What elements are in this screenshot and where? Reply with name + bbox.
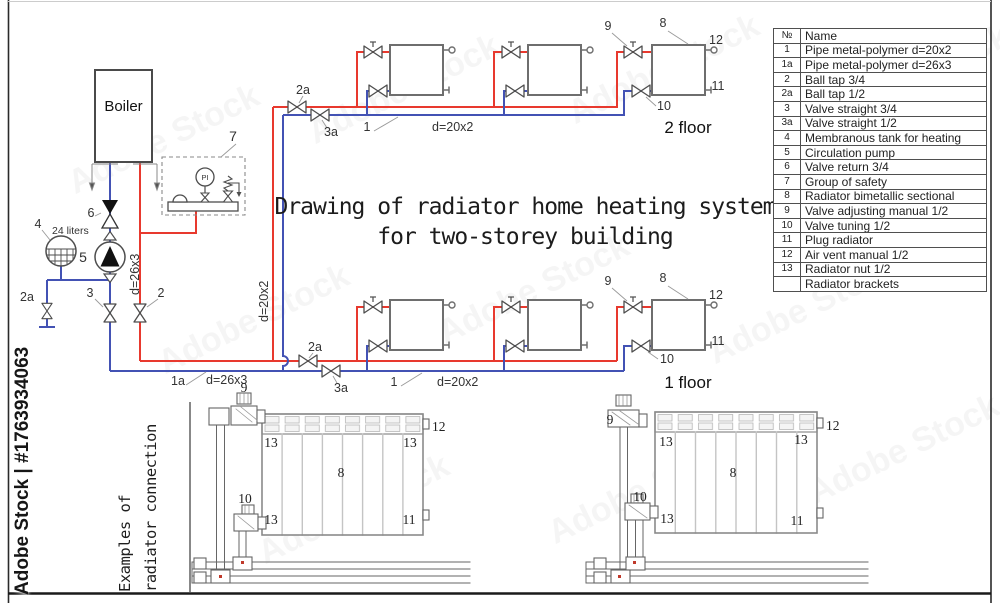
valve-adjusting-symbol bbox=[624, 42, 642, 58]
valve-tuning-symbol bbox=[506, 340, 524, 352]
row-num: 1a bbox=[774, 58, 801, 73]
boiler-label: Boiler bbox=[104, 98, 142, 115]
row-name: Valve tuning 1/2 bbox=[801, 218, 987, 233]
valve-adjusting-symbol bbox=[364, 297, 382, 313]
radiator-symbol bbox=[528, 300, 593, 350]
row-num: 13 bbox=[774, 262, 801, 277]
radiator-symbol bbox=[652, 300, 717, 350]
callout-11: 11 bbox=[712, 79, 725, 93]
table-row: 6Valve return 3/4 bbox=[774, 160, 987, 175]
callout-13: 13 bbox=[403, 435, 417, 450]
floor1-label: 1 floor bbox=[664, 373, 712, 392]
callout-2: 2 bbox=[158, 286, 165, 300]
callout-9: 9 bbox=[607, 412, 614, 427]
stock-drawing-page: Adobe Stock Adobe Stock Adobe Stock Adob… bbox=[0, 0, 1000, 603]
ball-tap-2a-symbol bbox=[299, 355, 317, 367]
valve-adjusting-symbol bbox=[624, 297, 642, 313]
circulation-pump-symbol bbox=[95, 232, 125, 283]
valve-tuning-symbol bbox=[632, 340, 650, 352]
supply-pipe-red bbox=[140, 162, 196, 361]
air-vent-icon bbox=[173, 195, 187, 202]
table-row: 12Air vent manual 1/2 bbox=[774, 247, 987, 262]
callout-12: 12 bbox=[709, 33, 723, 47]
row-name: Valve return 3/4 bbox=[801, 160, 987, 175]
callout-5: 5 bbox=[79, 249, 87, 265]
valve-tuning-symbol bbox=[369, 340, 387, 352]
pipe-size-d20: d=20x2 bbox=[437, 375, 478, 389]
row-num bbox=[774, 277, 801, 292]
valve-adjusting-symbol bbox=[502, 42, 520, 58]
callout-12: 12 bbox=[826, 418, 840, 433]
table-row: 2aBall tap 1/2 bbox=[774, 87, 987, 102]
safety-group-symbol: PI bbox=[162, 157, 245, 215]
callout-10: 10 bbox=[660, 352, 674, 366]
row-name: Valve adjusting manual 1/2 bbox=[801, 204, 987, 219]
row-num: 5 bbox=[774, 145, 801, 160]
callout-9: 9 bbox=[241, 380, 248, 395]
callout-13: 13 bbox=[794, 432, 808, 447]
callout-2a: 2a bbox=[296, 83, 310, 97]
floor2-label: 2 floor bbox=[664, 118, 712, 137]
row-name: Ball tap 1/2 bbox=[801, 87, 987, 102]
table-row: 2Ball tap 3/4 bbox=[774, 72, 987, 87]
header-name: Name bbox=[801, 29, 987, 44]
pipe-size-d20-riser: d=20x2 bbox=[257, 281, 271, 322]
radiator-symbol bbox=[390, 300, 455, 350]
callout-3: 3 bbox=[87, 286, 94, 300]
row-num: 11 bbox=[774, 233, 801, 248]
examples-caption: Examples of radiator connection bbox=[112, 416, 164, 592]
callout-10: 10 bbox=[657, 99, 671, 113]
callout-4: 4 bbox=[35, 217, 42, 231]
row-num: 2 bbox=[774, 72, 801, 87]
valve-straight-3-symbol bbox=[104, 304, 116, 322]
table-row: 1Pipe metal-polymer d=20x2 bbox=[774, 43, 987, 58]
row-num: 6 bbox=[774, 160, 801, 175]
callout-9: 9 bbox=[605, 19, 612, 33]
row-num: 10 bbox=[774, 218, 801, 233]
row-num: 1 bbox=[774, 43, 801, 58]
row-name: Air vent manual 1/2 bbox=[801, 247, 987, 262]
table-row: 10Valve tuning 1/2 bbox=[774, 218, 987, 233]
caption-line2: radiator connection bbox=[138, 416, 164, 592]
title-line1: Drawing of radiator home heating system bbox=[270, 192, 780, 222]
floor2-return-blue bbox=[283, 91, 652, 115]
caption-line1: Examples of bbox=[112, 416, 138, 592]
radiator-symbol bbox=[528, 45, 593, 95]
callout-6: 6 bbox=[88, 206, 95, 220]
row-num: 12 bbox=[774, 247, 801, 262]
header-num: № bbox=[774, 29, 801, 44]
callout-12: 12 bbox=[432, 419, 446, 434]
ball-tap-2a-symbol bbox=[288, 101, 306, 113]
callout-1a: 1a bbox=[171, 374, 185, 388]
ball-tap-2a-symbol bbox=[42, 303, 52, 318]
pipe-size-d26-riser: d=26x3 bbox=[128, 254, 142, 295]
callout-2a: 2a bbox=[308, 340, 322, 354]
valve-straight-3a-symbol bbox=[311, 109, 329, 121]
callout-1: 1 bbox=[364, 120, 371, 134]
table-row: 3Valve straight 3/4 bbox=[774, 101, 987, 116]
row-name: Pipe metal-polymer d=20x2 bbox=[801, 43, 987, 58]
callout-7: 7 bbox=[229, 128, 237, 144]
example-connection-right: 9 13 13 12 8 10 13 11 bbox=[586, 395, 868, 583]
callout-3a: 3a bbox=[334, 381, 348, 395]
callout-13: 13 bbox=[264, 435, 278, 450]
row-name: Group of safety bbox=[801, 174, 987, 189]
boiler-box bbox=[95, 70, 152, 162]
row-name: Pipe metal-polymer d=26x3 bbox=[801, 58, 987, 73]
table-header-row: № Name bbox=[774, 29, 987, 44]
row-name: Valve straight 3/4 bbox=[801, 101, 987, 116]
flow-arrows bbox=[90, 164, 160, 190]
valve-straight-3a-symbol bbox=[322, 365, 340, 377]
table-row: 8Radiator bimetallic sectional bbox=[774, 189, 987, 204]
row-num: 8 bbox=[774, 189, 801, 204]
row-num: 4 bbox=[774, 131, 801, 146]
parts-table: № Name 1Pipe metal-polymer d=20x2 1aPipe… bbox=[773, 28, 987, 292]
floor2-circuit: 9 8 12 11 10 2a 3a 1 d=20x2 2 floor bbox=[273, 16, 725, 139]
callout-10: 10 bbox=[238, 491, 252, 506]
radiator-symbol bbox=[652, 45, 717, 95]
ball-tap-2-symbol bbox=[134, 304, 146, 322]
callout-10: 10 bbox=[633, 489, 647, 504]
table-row: Radiator brackets bbox=[774, 277, 987, 292]
table-row: 11Plug radiator bbox=[774, 233, 987, 248]
table-row: 5Circulation pump bbox=[774, 145, 987, 160]
callout-11: 11 bbox=[403, 512, 416, 527]
callout-1: 1 bbox=[391, 375, 398, 389]
row-name: Circulation pump bbox=[801, 145, 987, 160]
callout-8: 8 bbox=[338, 465, 345, 480]
table-row: 4Membranous tank for heating bbox=[774, 131, 987, 146]
callout-12: 12 bbox=[709, 288, 723, 302]
boiler-circuit: Boiler bbox=[20, 70, 245, 371]
callout-11: 11 bbox=[791, 513, 804, 528]
row-num: 2a bbox=[774, 87, 801, 102]
tank-capacity-label: 24 liters bbox=[52, 225, 89, 237]
row-name: Ball tap 3/4 bbox=[801, 72, 987, 87]
table-row: 3aValve straight 1/2 bbox=[774, 116, 987, 131]
row-num: 7 bbox=[774, 174, 801, 189]
expansion-tank-symbol bbox=[45, 236, 77, 267]
row-num: 3a bbox=[774, 116, 801, 131]
floor2-supply-red bbox=[273, 52, 652, 107]
drawing-title: Drawing of radiator home heating system … bbox=[270, 192, 780, 252]
valve-tuning-symbol bbox=[369, 85, 387, 97]
pipe-size-d20: d=20x2 bbox=[432, 120, 473, 134]
callout-13: 13 bbox=[264, 512, 278, 527]
callout-8: 8 bbox=[660, 271, 667, 285]
valve-tuning-symbol bbox=[506, 85, 524, 97]
callout-13: 13 bbox=[660, 511, 674, 526]
row-name: Valve straight 1/2 bbox=[801, 116, 987, 131]
gauge-label: PI bbox=[201, 173, 208, 182]
floor1-circuit: 9 8 12 11 10 2a 3a 1 d=20x2 1 floor bbox=[299, 271, 725, 395]
valve-adjusting-symbol bbox=[502, 297, 520, 313]
valve-adjusting-symbol bbox=[364, 42, 382, 58]
relief-valve-icon bbox=[224, 176, 242, 202]
example-connection-left: 9 13 13 12 8 10 13 11 bbox=[192, 380, 470, 583]
row-name: Radiator brackets bbox=[801, 277, 987, 292]
callout-2a: 2a bbox=[20, 290, 34, 304]
table-row: 7Group of safety bbox=[774, 174, 987, 189]
callout-3a: 3a bbox=[324, 125, 338, 139]
callout-8: 8 bbox=[730, 465, 737, 480]
row-name: Radiator bimetallic sectional bbox=[801, 189, 987, 204]
title-line2: for two-storey building bbox=[270, 222, 780, 252]
row-num: 3 bbox=[774, 101, 801, 116]
valve-return-symbol bbox=[102, 200, 118, 228]
stock-brand-watermark: Adobe Stock | #1763934063 bbox=[12, 347, 34, 595]
callout-13: 13 bbox=[659, 434, 673, 449]
table-row: 9Valve adjusting manual 1/2 bbox=[774, 204, 987, 219]
callout-11: 11 bbox=[712, 334, 725, 348]
table-row: 1aPipe metal-polymer d=26x3 bbox=[774, 58, 987, 73]
callout-8: 8 bbox=[660, 16, 667, 30]
row-name: Radiator nut 1/2 bbox=[801, 262, 987, 277]
row-name: Membranous tank for heating bbox=[801, 131, 987, 146]
row-num: 9 bbox=[774, 204, 801, 219]
callout-9: 9 bbox=[605, 274, 612, 288]
row-name: Plug radiator bbox=[801, 233, 987, 248]
radiator-symbol bbox=[390, 45, 455, 95]
valve-tuning-symbol bbox=[632, 85, 650, 97]
table-row: 13Radiator nut 1/2 bbox=[774, 262, 987, 277]
